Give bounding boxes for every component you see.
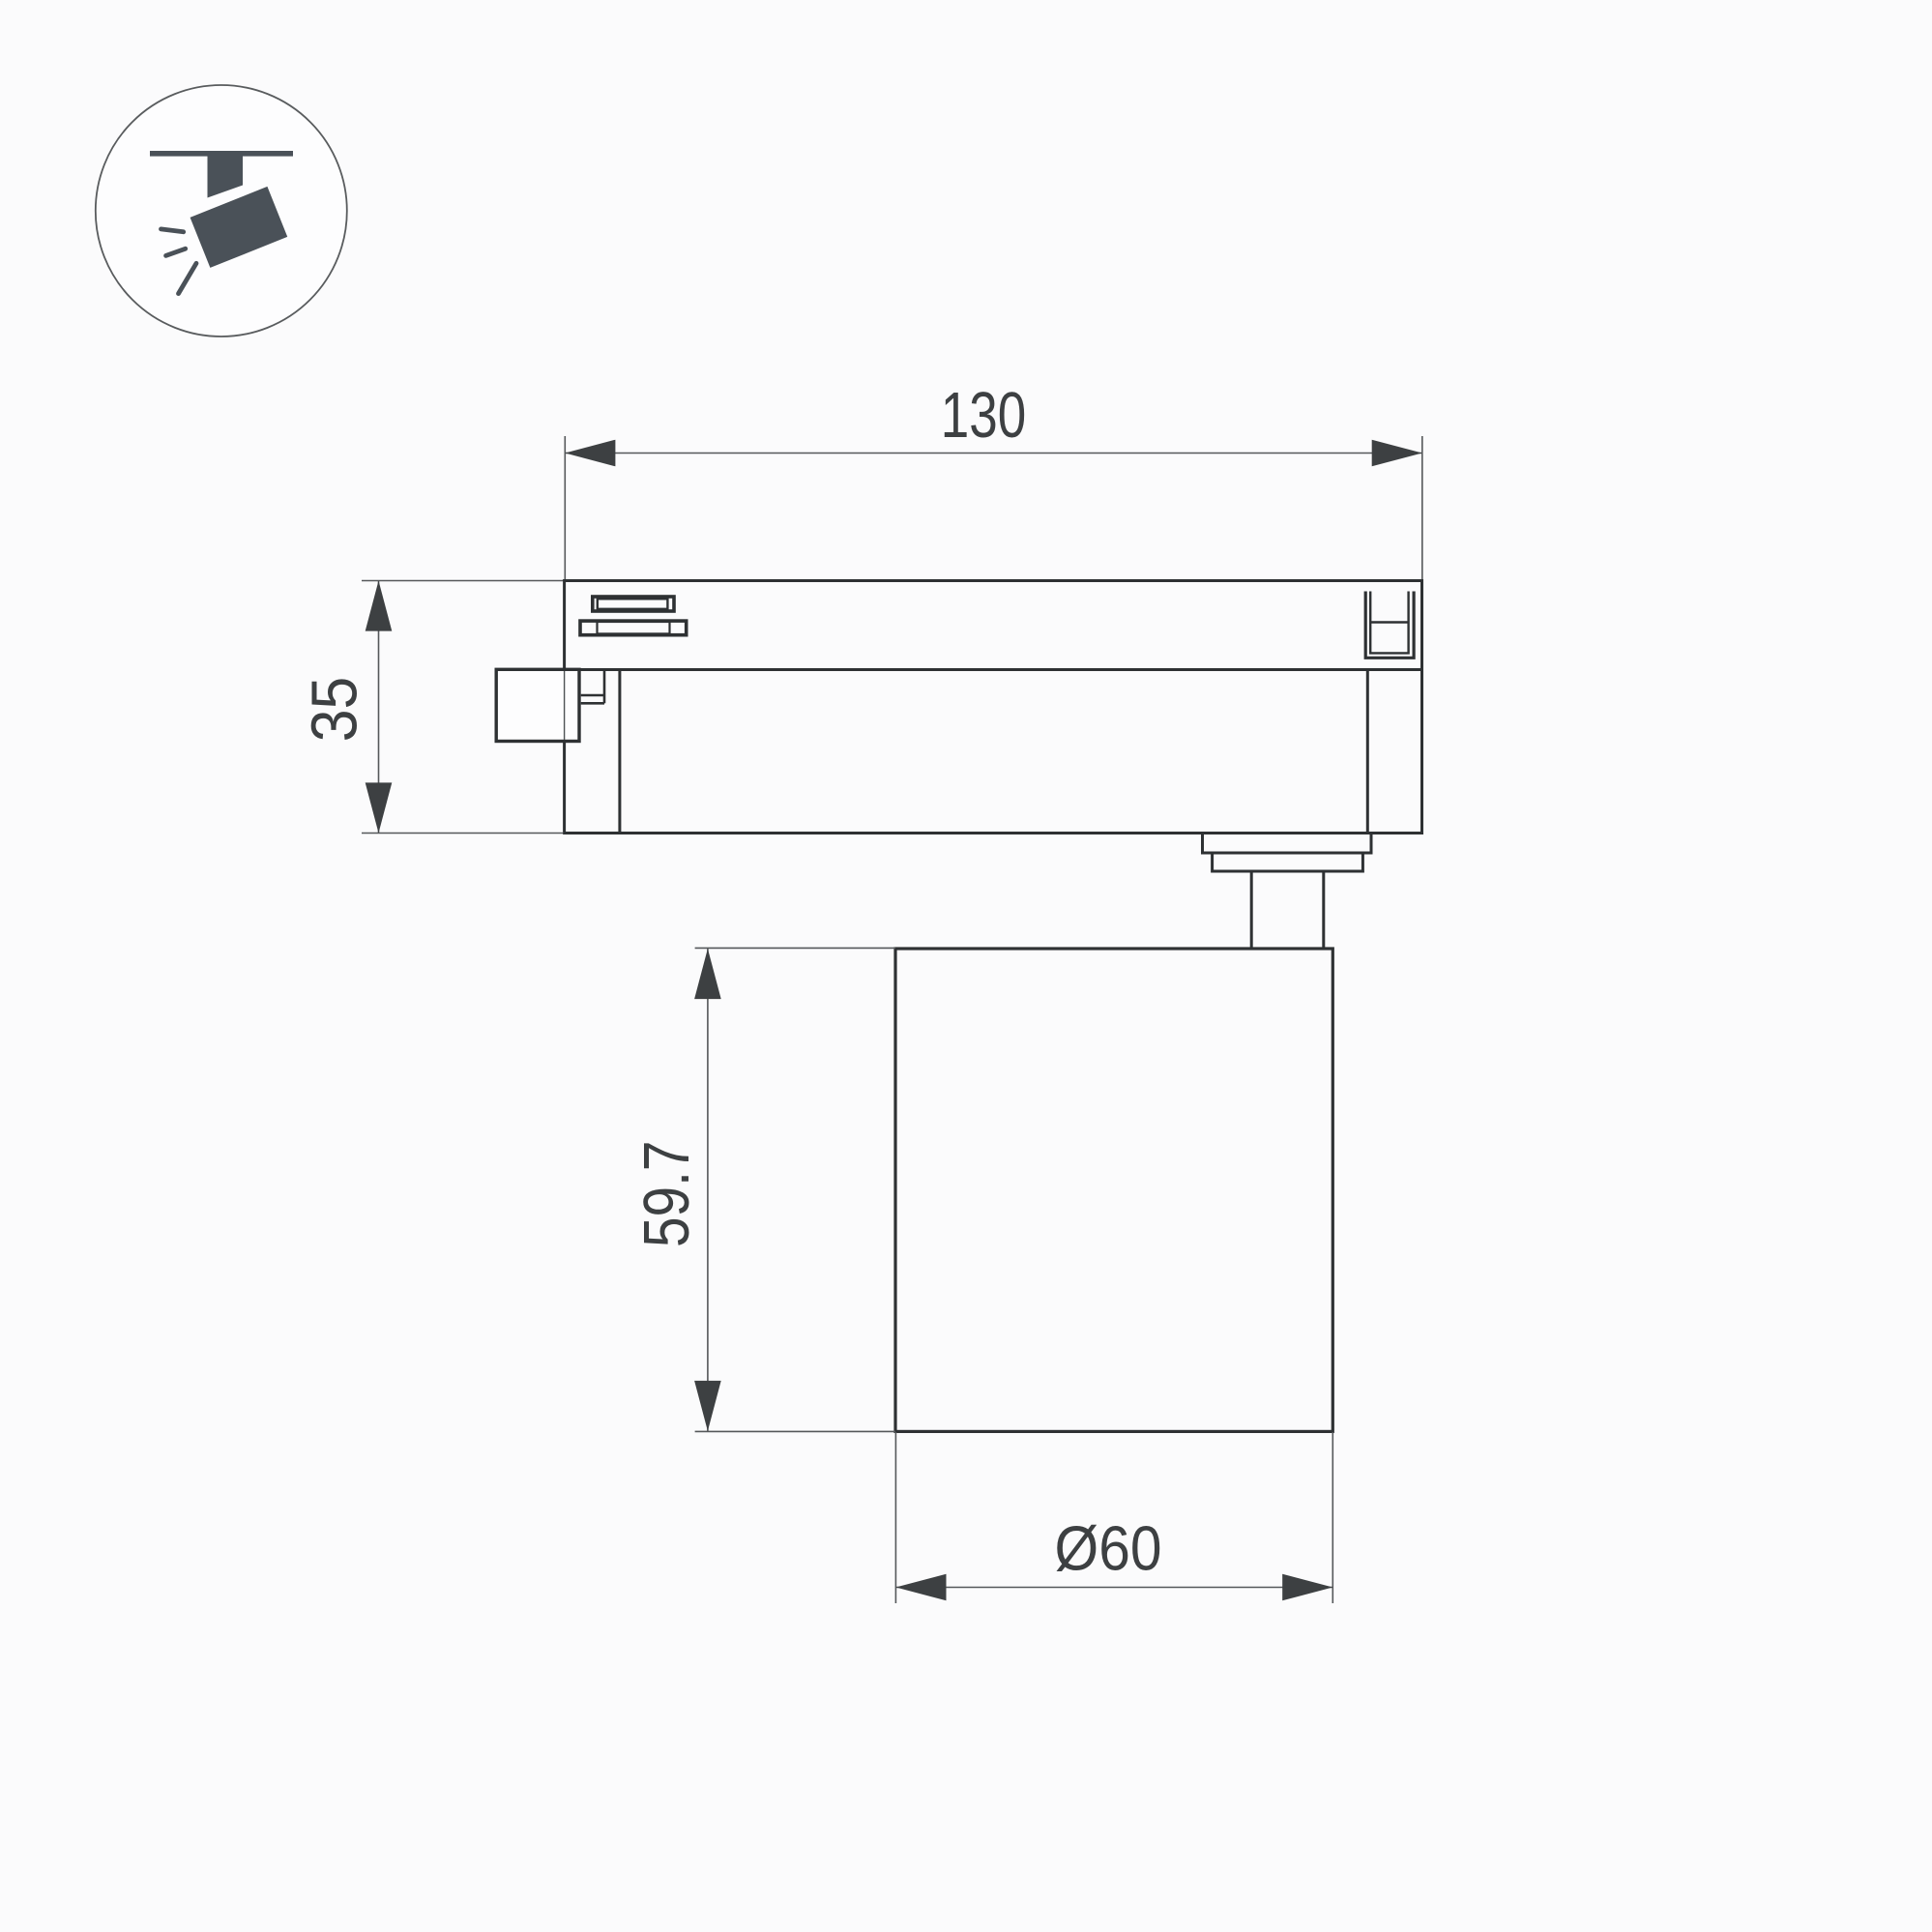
svg-text:Ø60: Ø60 bbox=[1055, 1514, 1162, 1584]
svg-text:130: 130 bbox=[941, 379, 1026, 451]
svg-text:35: 35 bbox=[299, 677, 370, 742]
svg-text:59.7: 59.7 bbox=[631, 1141, 703, 1247]
